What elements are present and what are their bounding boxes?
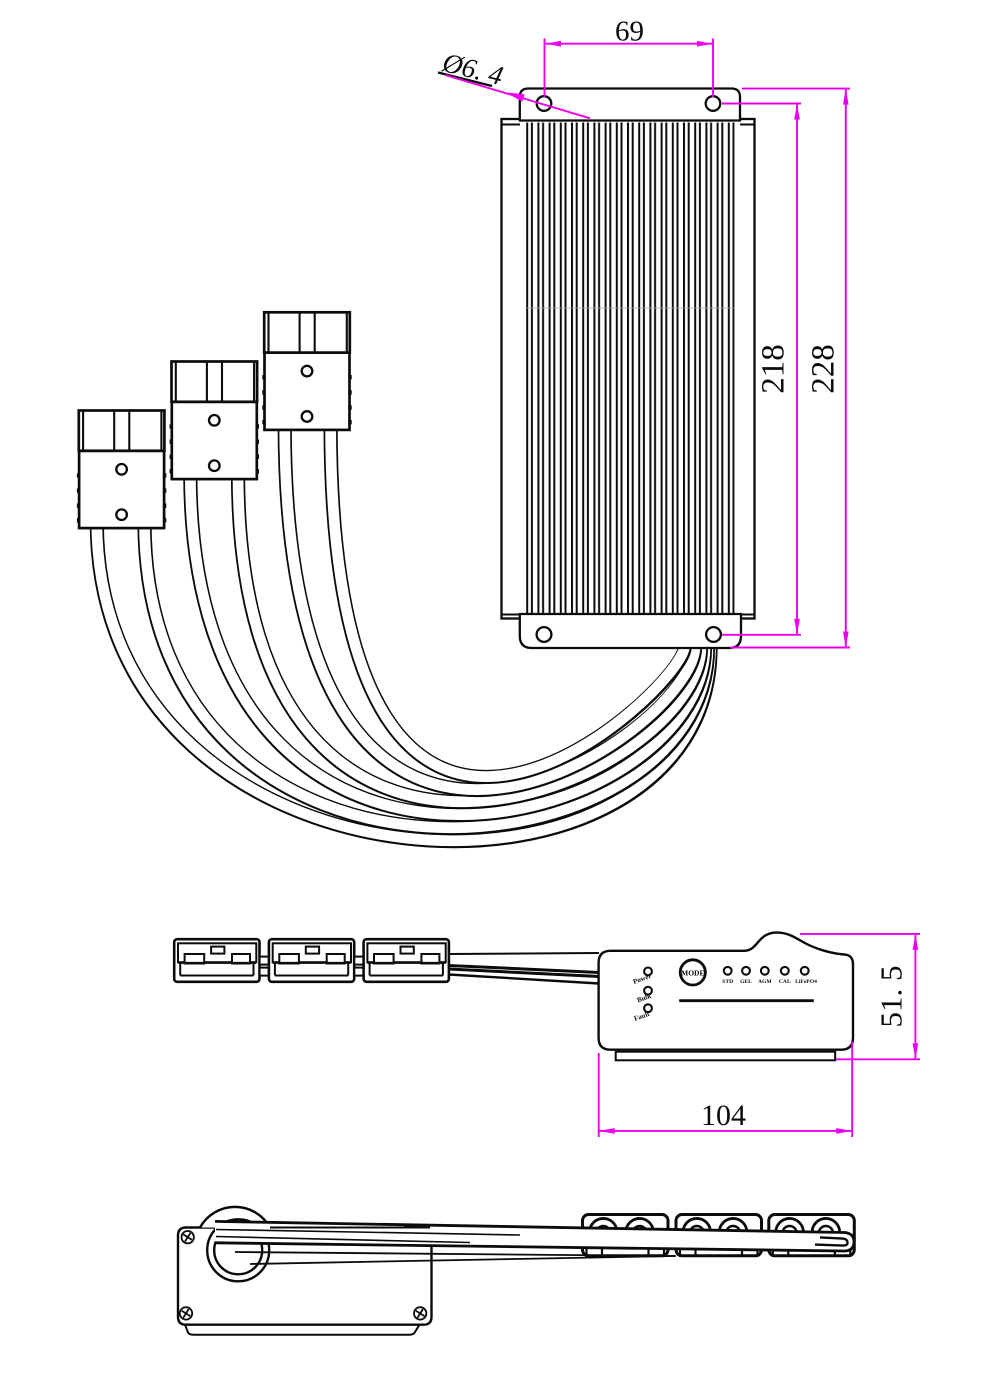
svg-text:MODE: MODE [681,968,704,977]
svg-text:AGM: AGM [758,979,772,985]
svg-text:51. 5: 51. 5 [874,966,909,1028]
svg-text:218: 218 [756,344,792,394]
svg-text:CAL: CAL [779,979,791,985]
svg-text:228: 228 [806,344,842,394]
svg-text:104: 104 [701,1099,746,1132]
svg-text:GEL: GEL [740,979,752,985]
svg-text:Ø6. 4: Ø6. 4 [439,46,507,91]
svg-text:LiFePO4: LiFePO4 [795,979,817,985]
svg-text:STD: STD [722,979,733,985]
svg-text:69: 69 [615,16,644,48]
